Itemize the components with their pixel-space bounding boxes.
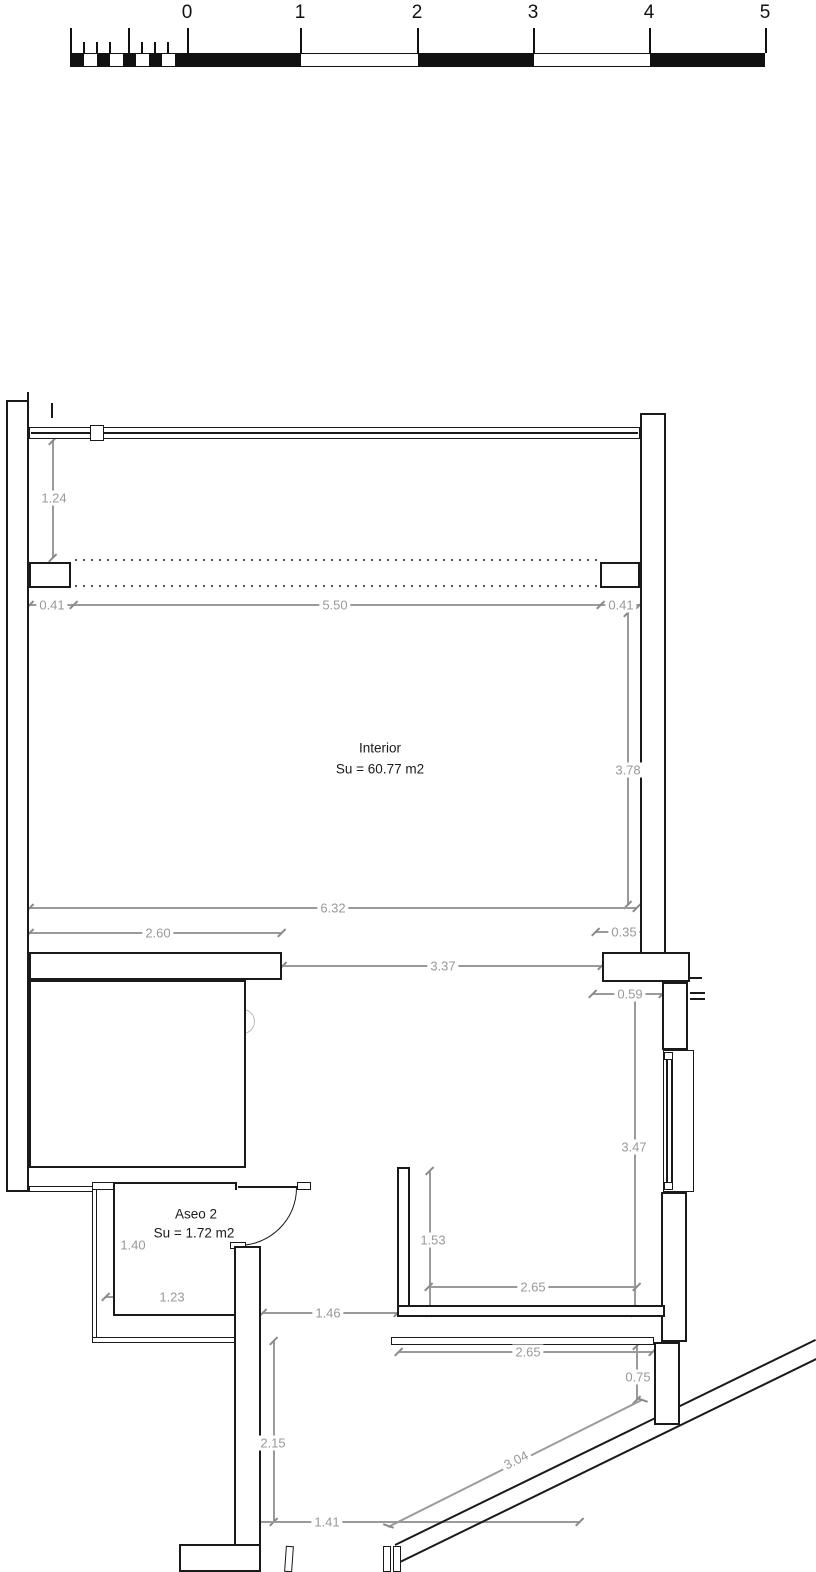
wall-junction-bar [602,952,690,982]
door-jamb-bottom [383,1546,391,1572]
dotted-overhang-line [75,559,598,561]
wall-step-left [29,1186,97,1192]
room-name-aseo: Aseo 2 [175,1207,217,1222]
wall-pilaster-left [29,562,71,588]
window-frame-block [664,1052,673,1060]
wall-right-outer [640,413,666,954]
wall-ramp-stub [654,1342,680,1425]
scale-tick [187,28,189,53]
dim-aseo-height: 1.40 [117,1238,148,1253]
railing-band-midline [31,432,638,434]
wall-left-outer [6,400,29,1192]
dim-terrace-inner-width: 2.65 [517,1280,548,1295]
dim-aseo-width: 1.23 [156,1290,187,1305]
room-area-interior: Su = 60.77 m2 [336,762,424,777]
dotted-overhang-line [75,585,598,587]
ramp-rail-outer [395,1339,816,1546]
wall-terrace-left [397,1167,410,1317]
wall-center-column [234,1246,261,1546]
wall-left-lower [92,1188,97,1342]
door-jamb-bottom [393,1546,401,1572]
scale-tick [128,28,130,53]
wall-aseo-top-ext [92,1182,115,1190]
dim-hall-width: 3.37 [427,959,458,974]
scale-tick [300,28,302,53]
dim-terrace-outer-width: 2.65 [512,1345,543,1360]
scale-tick [649,28,651,53]
fixture-tick [690,998,705,1000]
scale-minor-tick [83,42,85,53]
dim-top-right-offset: 0.41 [605,598,636,613]
dim-top-left-offset: 0.41 [36,598,67,613]
scale-number-5: 5 [760,2,771,24]
room-name-interior: Interior [359,741,401,756]
wall-footing [179,1544,261,1572]
dim-top-width: 5.50 [319,598,350,613]
scale-number-4: 4 [644,2,655,24]
scale-minor-tick [154,42,156,53]
dim-terrace-inner-height: 1.53 [417,1233,448,1248]
wall-top-tick [51,403,53,418]
room-area-aseo: Su = 1.72 m2 [154,1226,235,1241]
scale-tick [533,28,535,53]
dim-exit-width: 1.41 [311,1515,342,1530]
scale-minor-tick [167,42,169,53]
scale-minor-tick [96,42,98,53]
wall-bottom-aseo [92,1337,236,1343]
wall-stair-head [29,952,282,980]
wall-pilaster-right [600,562,640,588]
fixture-tick [690,977,702,979]
scale-tick [70,28,72,53]
door-head-stub [297,1182,311,1190]
scale-minor-tick [109,42,111,53]
dim-interior-width: 6.32 [317,901,348,916]
stair-enclosure [29,980,246,1168]
dim-right-jog: 0.35 [608,925,639,940]
dim-ramp-length: 3.04 [499,1446,534,1473]
wall-right-mid [662,982,688,1050]
scale-minor-tick [141,42,143,53]
ramp-rail-inner [398,1357,816,1564]
railing-post-block [90,425,104,441]
dim-hall-right-width: 0.59 [614,987,645,1002]
scale-number-0: 0 [182,2,193,24]
wall-right-lower [661,1192,687,1342]
dim-right-lower-height: 3.47 [618,1140,649,1155]
dim-passage-width: 1.46 [312,1306,343,1321]
window-right [663,1050,694,1192]
dim-line-passage-height [273,1340,275,1522]
dim-line-interior-height [627,612,629,905]
window-sash-line [666,1058,668,1184]
scale-tick [765,28,767,53]
scale-band [70,53,765,67]
window-frame-block [664,1182,673,1190]
fixture-tick [690,992,705,994]
door-swing-arc [238,1188,297,1246]
dim-line-exit-width [245,1521,580,1523]
scale-number-1: 1 [295,2,306,24]
window-sash-line [671,1058,673,1184]
wall-top-tick [27,392,29,402]
scale-number-2: 2 [412,2,423,24]
dim-left-height: 1.24 [38,491,69,506]
dim-ramp-drop: 0.75 [622,1370,653,1385]
scale-tick [417,28,419,53]
door-leaf-bottom [284,1546,294,1572]
dim-passage-height: 2.15 [257,1436,288,1451]
dim-stair-width: 2.60 [142,926,173,941]
floor-plan-canvas: 0 1 2 3 4 5 [0,0,816,1572]
wall-terrace-bottom [397,1305,665,1317]
scale-number-3: 3 [528,2,539,24]
dim-interior-height: 3.78 [612,763,643,778]
